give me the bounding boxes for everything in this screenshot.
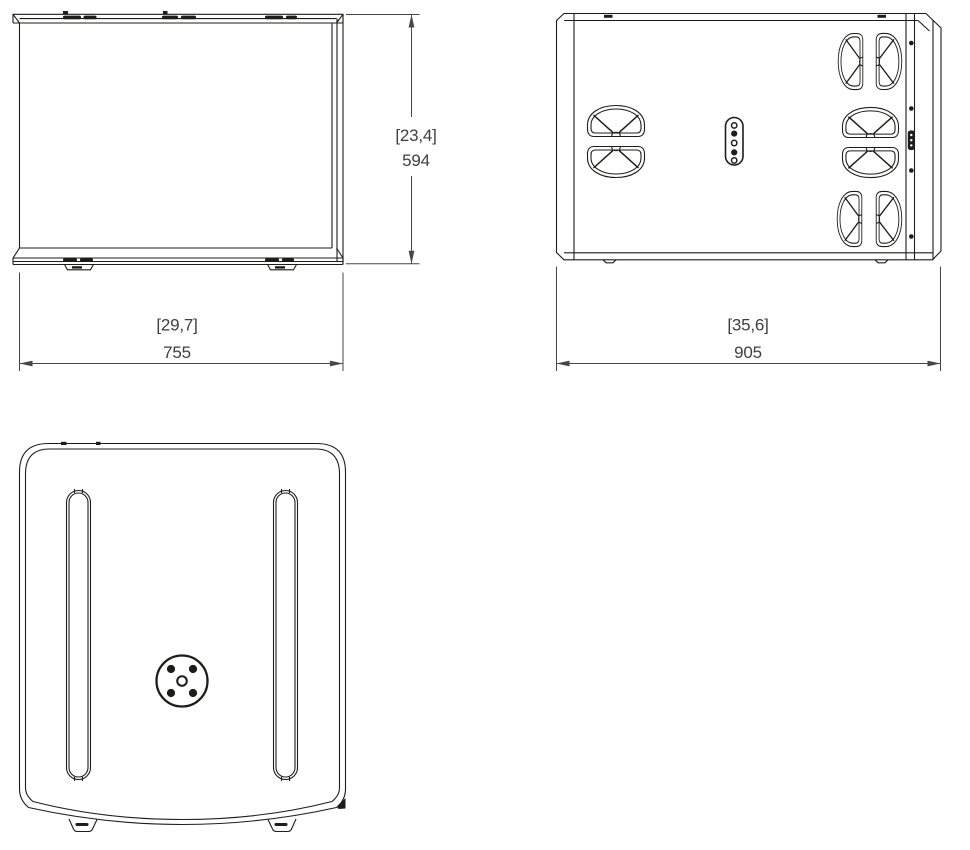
handle-icon — [838, 33, 863, 89]
pole-mount-icon — [157, 656, 208, 707]
handle-icon — [588, 106, 645, 137]
technical-drawing-page: [23,4] 594 [29,7] 755 [35,6] 905 — [0, 0, 970, 850]
rigging-slot — [63, 258, 294, 261]
drawing-canvas: [23,4] 594 [29,7] 755 [35,6] 905 — [0, 0, 970, 850]
dimension-front-width-bracket-label: [29,7] — [156, 316, 197, 335]
dimension-height-value-label: 594 — [402, 151, 430, 170]
handle-icon — [842, 147, 898, 177]
handle-icon — [876, 191, 902, 246]
dimension-front-width: [29,7] 755 — [20, 273, 344, 372]
dimension-arrow — [20, 361, 33, 367]
rigging-slot — [96, 442, 101, 445]
side-view — [557, 14, 942, 263]
dimension-side-depth: [35,6] 905 — [557, 267, 941, 372]
dimension-arrow — [330, 361, 343, 367]
rigging-slot — [878, 15, 887, 18]
handle-icon — [842, 107, 898, 137]
rail-slot — [67, 489, 91, 781]
connector-panel-icon — [726, 118, 744, 166]
dimension-arrow — [928, 361, 941, 367]
link-connector-icon — [908, 131, 915, 151]
handle-icon — [588, 147, 645, 178]
handle-icon — [837, 191, 862, 246]
dimension-arrow — [409, 15, 415, 28]
dimension-front-width-value-label: 755 — [163, 343, 191, 362]
rigging-slot — [61, 442, 67, 445]
dimension-side-depth-bracket-label: [35,6] — [727, 316, 768, 335]
foot — [65, 265, 94, 270]
dimension-side-depth-value-label: 905 — [734, 343, 762, 362]
rail-slot — [274, 489, 298, 781]
dimension-arrow — [409, 251, 415, 264]
foot — [268, 265, 297, 270]
dimension-height: [23,4] 594 — [346, 15, 437, 264]
foot — [268, 819, 296, 832]
front-view — [13, 11, 343, 270]
handle-icon — [876, 33, 902, 89]
dimension-height-bracket-label: [23,4] — [395, 126, 436, 145]
foot — [69, 819, 97, 832]
bottom-view — [20, 442, 346, 832]
rigging-slot — [604, 15, 613, 18]
dimension-arrow — [557, 361, 570, 367]
